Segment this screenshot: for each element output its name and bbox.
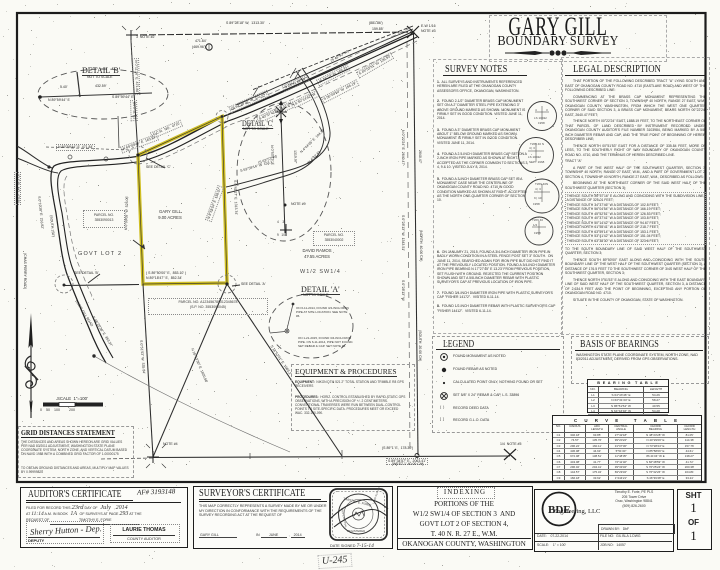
svg-text:4 | 3: 4 | 3 (529, 146, 535, 150)
svg-text:1958: 1958 (534, 231, 541, 235)
svg-text:TWN 40 N: TWN 40 N (530, 142, 544, 146)
svg-text:LS 10432: LS 10432 (534, 116, 547, 120)
svg-text:LS 10432: LS 10432 (528, 155, 541, 159)
svg-text:TWN 40N: TWN 40N (535, 182, 548, 186)
svg-text:4 | 3: 4 | 3 (535, 187, 541, 191)
svg-text:3: 3 (546, 108, 548, 112)
svg-text:4: 4 (535, 108, 537, 112)
svg-text:1/4: 1/4 (533, 223, 538, 227)
svg-text:9 | 10: 9 | 10 (534, 196, 542, 200)
svg-text:1958: 1958 (538, 121, 545, 125)
svg-text:SEPT 1968: SEPT 1968 (529, 160, 545, 164)
svg-text:1958: 1958 (533, 202, 540, 206)
svg-text:REGISTERED: REGISTERED (347, 529, 365, 533)
svg-text:TWN 40: TWN 40 (532, 218, 543, 222)
